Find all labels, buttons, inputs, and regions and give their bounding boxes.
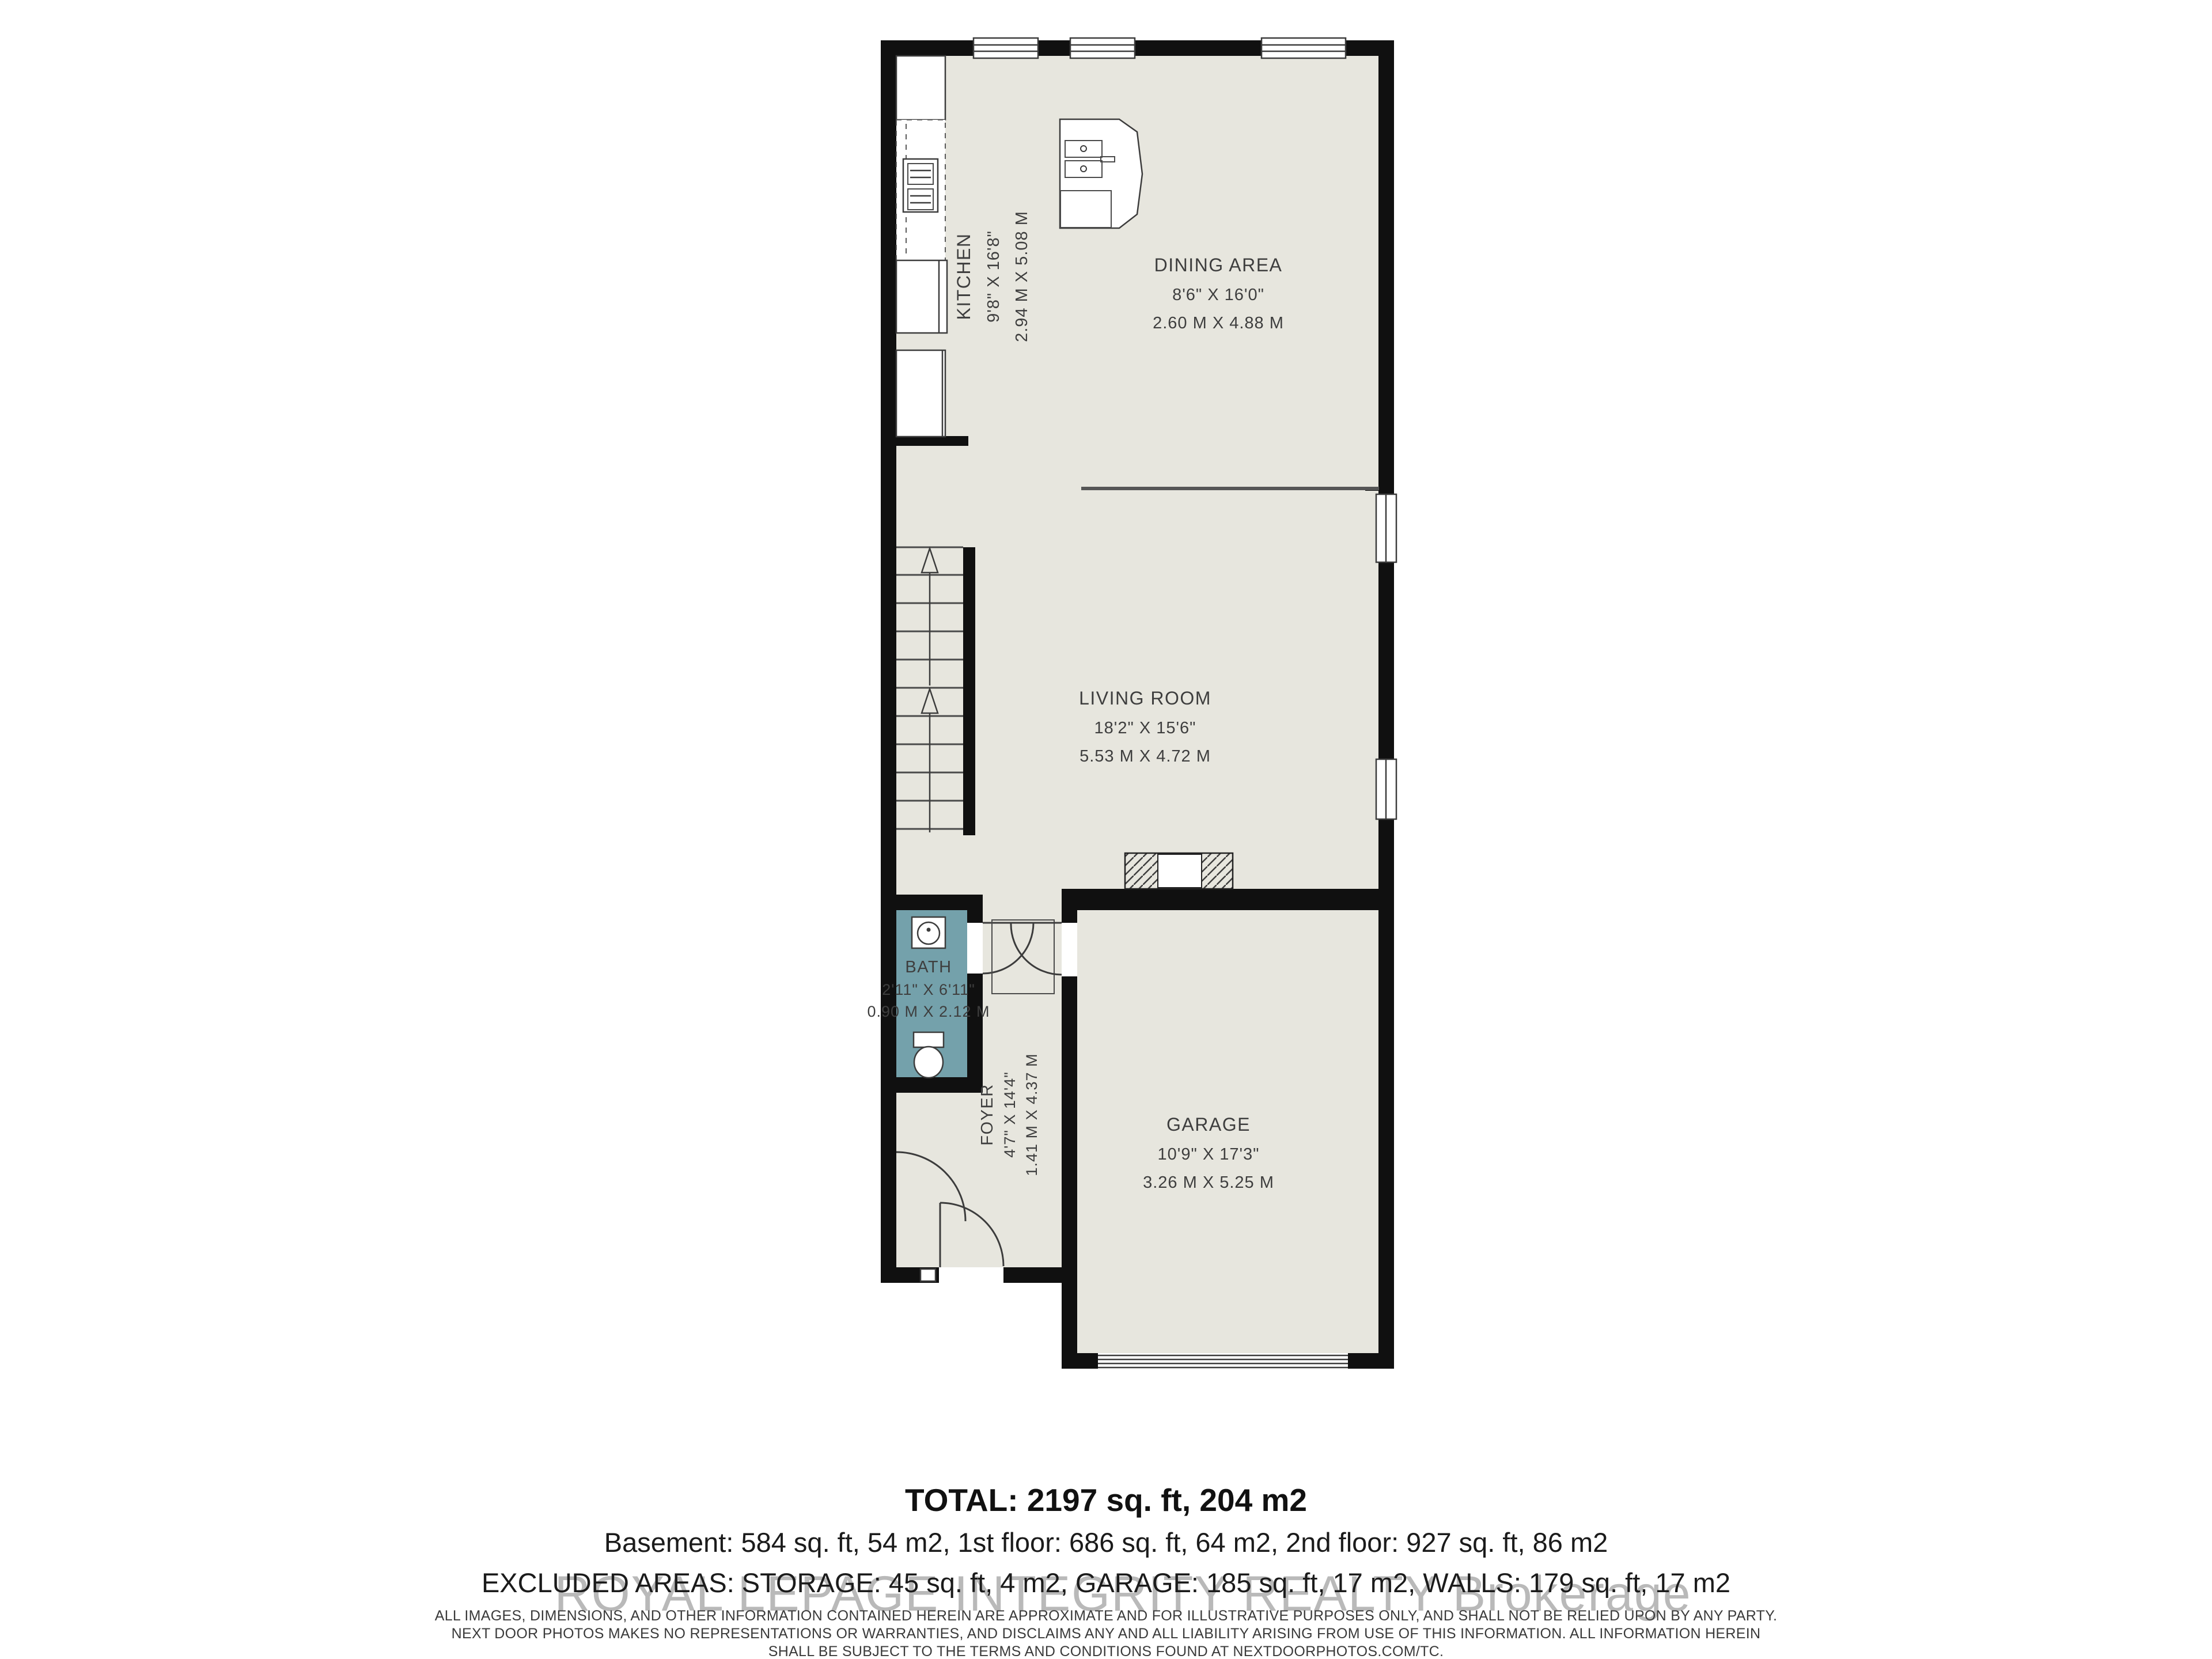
room-label-dining: DINING AREA 8'6" X 16'0" 2.60 M X 4.88 M	[1115, 253, 1322, 333]
garage-door	[1098, 1353, 1348, 1369]
room-label-living: LIVING ROOM 18'2" X 15'6" 5.53 M X 4.72 …	[1041, 687, 1249, 766]
window-right-1	[1376, 494, 1396, 562]
excluded-areas-text: EXCLUDED AREAS: STORAGE: 45 sq. ft, 4 m2…	[0, 1567, 2212, 1599]
window-top-3	[1262, 38, 1346, 58]
window-top-2	[1070, 38, 1135, 58]
window-top-1	[974, 38, 1038, 58]
fridge	[896, 260, 947, 333]
pantry-cabinet	[896, 350, 945, 437]
dining-living-divider	[1081, 487, 1379, 490]
door-jamb	[921, 1269, 935, 1281]
window-right-2	[1376, 759, 1396, 819]
room-label-foyer: FOYER 4'7" X 14'4" 1.41 M X 4.37 M	[978, 1017, 1047, 1213]
floor-areas-text: Basement: 584 sq. ft, 54 m2, 1st floor: …	[0, 1527, 2212, 1558]
bath-sink	[912, 917, 945, 948]
room-label-bath: BATH 2'11" X 6'11" 0.90 M X 2.12 M	[848, 957, 1009, 1021]
disclaimer-line-1: ALL IMAGES, DIMENSIONS, AND OTHER INFORM…	[0, 1608, 2212, 1624]
disclaimer-line-2: NEXT DOOR PHOTOS MAKES NO REPRESENTATION…	[0, 1626, 2212, 1642]
room-label-garage: GARAGE 10'9" X 17'3" 3.26 M X 5.25 M	[1105, 1113, 1312, 1192]
stove	[903, 159, 938, 212]
entry-steps-hatch	[1125, 853, 1233, 889]
kitchen-island	[1060, 119, 1142, 228]
room-label-kitchen: KITCHEN 9'8" X 16'8" 2.94 M X 5.08 M	[952, 190, 1033, 363]
floorplan-drawing	[0, 0, 2212, 1659]
total-area-text: TOTAL: 2197 sq. ft, 204 m2	[0, 1482, 2212, 1518]
disclaimer-line-3: SHALL BE SUBJECT TO THE TERMS AND CONDIT…	[0, 1643, 2212, 1659]
kitchen-counter	[896, 56, 945, 260]
floorplan-page: KITCHEN 9'8" X 16'8" 2.94 M X 5.08 M DIN…	[0, 0, 2212, 1659]
toilet	[914, 1032, 944, 1078]
